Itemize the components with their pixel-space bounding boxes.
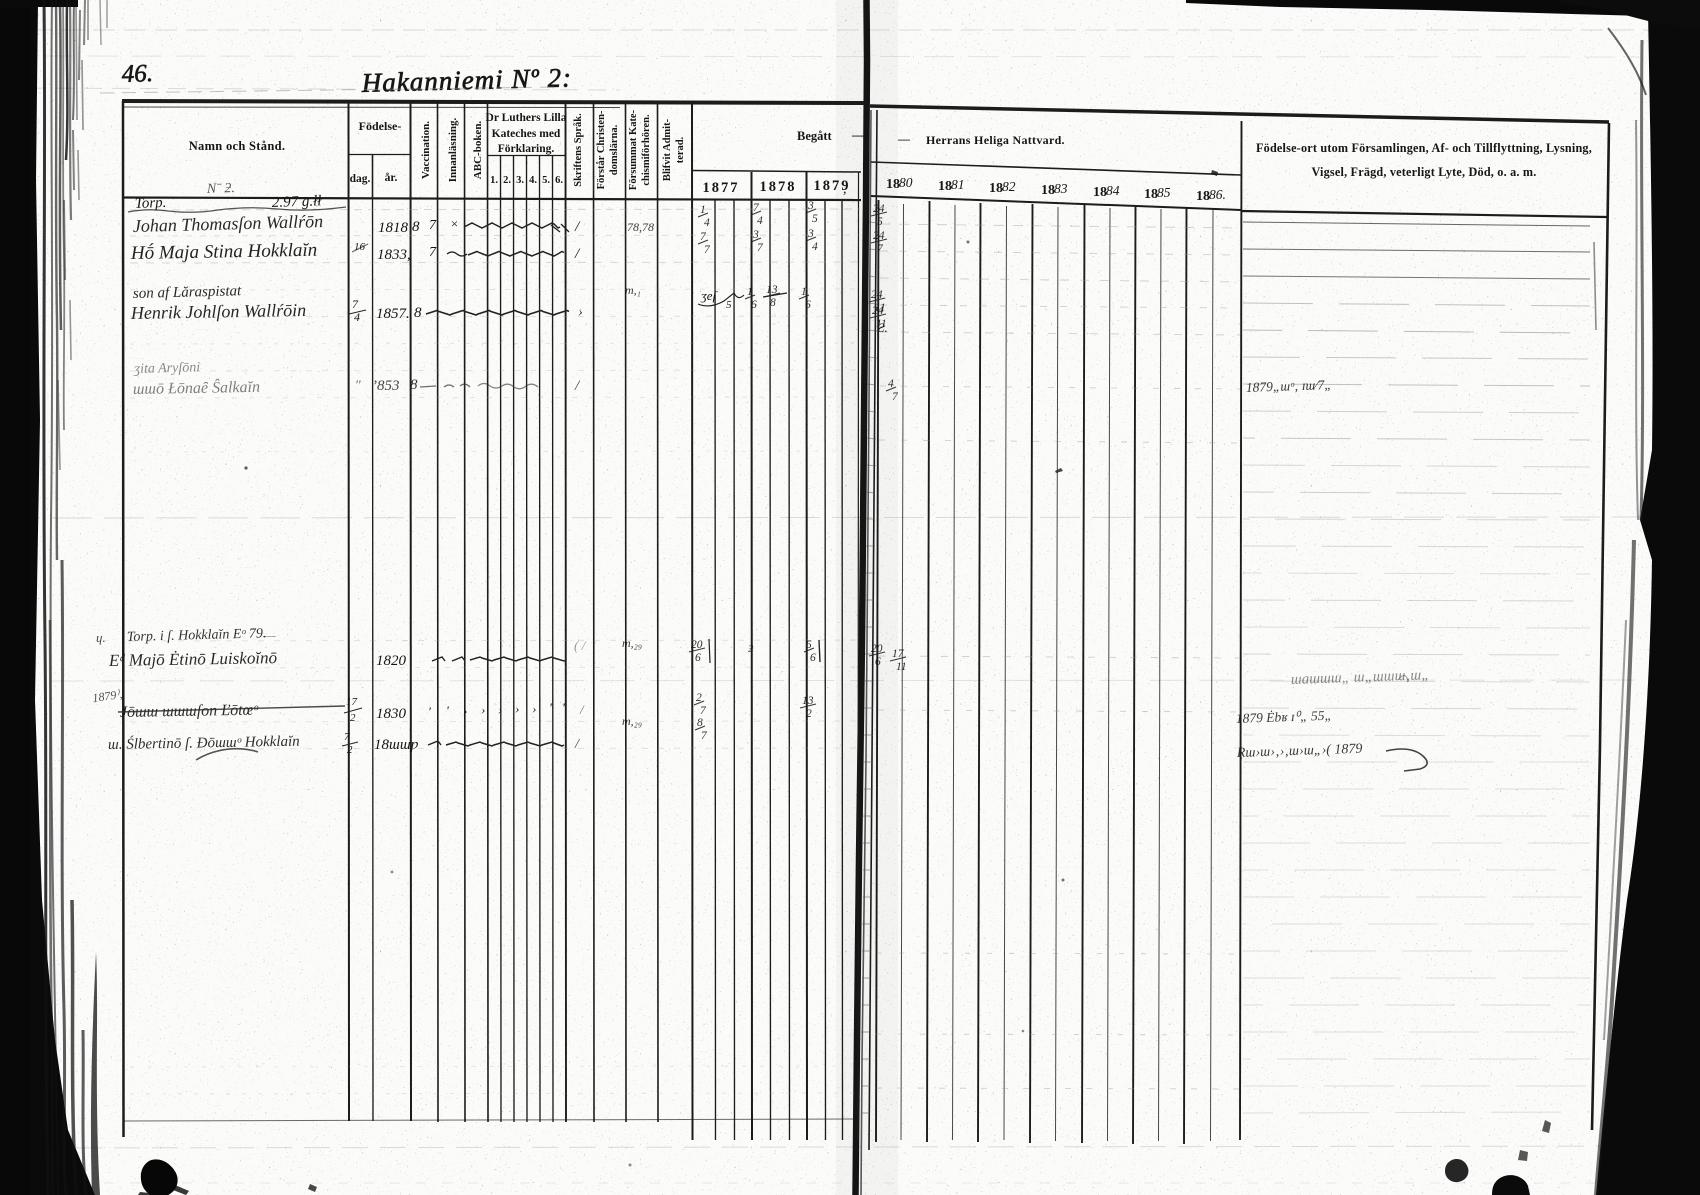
- svg-text:Herrans Heliga Nattvard.: Herrans Heliga Nattvard.: [926, 133, 1065, 147]
- svg-text:7: 7: [352, 297, 359, 311]
- svg-text:82: 82: [1002, 179, 1016, 194]
- svg-text:ʒeſ: ʒeſ: [700, 288, 719, 303]
- svg-text:›: ›: [481, 702, 485, 717]
- svg-text:ɥ.: ɥ.: [96, 630, 106, 645]
- svg-text:1.: 1.: [490, 175, 498, 186]
- svg-text:Eᵈ Majō Ėtinō Luiskoĭnō: Eᵈ Majō Ėtinō Luiskoĭnō: [108, 648, 278, 670]
- svg-text:Hakanniemi Nº 2:: Hakanniemi Nº 2:: [360, 62, 572, 98]
- svg-text:ʹ: ʹ: [428, 704, 431, 719]
- svg-text:m,₂₉: m,₂₉: [622, 714, 642, 728]
- svg-text:’853: ’853: [372, 378, 400, 394]
- svg-text:ˉˉˉ: ˉˉˉ: [262, 632, 277, 647]
- svg-text:46.: 46.: [121, 60, 153, 88]
- svg-text:år.: år.: [385, 172, 398, 184]
- svg-text:Födelse-ort utom Församlingen,: Födelse-ort utom Församlingen, Af- och T…: [1256, 141, 1592, 155]
- svg-text:1830: 1830: [376, 706, 407, 722]
- svg-text:8: 8: [412, 219, 420, 235]
- svg-text:Begått: Begått: [797, 129, 833, 143]
- svg-text:Vigsel, Frägd, veterligt Ly: Vigsel, Frägd, veterligt Lyte, Död, o. a…: [1312, 165, 1537, 179]
- svg-text:2: 2: [806, 708, 812, 720]
- svg-text:›: ›: [515, 701, 519, 716]
- svg-text:Försummat Kate-: Försummat Kate-: [628, 109, 639, 190]
- svg-text:ɯ. Ślbertinō ſ. Đōɯɯᵒ Hokklaĭn: ɯ. Ślbertinō ſ. Đōɯɯᵒ Hokklaĭn: [108, 733, 300, 753]
- svg-text:18ɯɯƿ: 18ɯɯƿ: [374, 737, 419, 753]
- svg-text:Skriftens Språk.: Skriftens Språk.: [573, 113, 584, 187]
- svg-text:1857.: 1857.: [376, 306, 410, 322]
- svg-text:85: 85: [1157, 185, 1171, 200]
- svg-text:8: 8: [770, 297, 776, 309]
- svg-text:Namn och Stånd.: Namn och Stånd.: [189, 139, 286, 153]
- svg-text:18: 18: [1093, 185, 1107, 200]
- svg-text:Ƨ.: Ƨ.: [878, 320, 888, 335]
- svg-text:8: 8: [414, 305, 422, 321]
- svg-text:Blifvit Admit-: Blifvit Admit-: [662, 118, 673, 181]
- svg-text:Kateches med: Kateches med: [492, 128, 561, 140]
- svg-text:6: 6: [695, 652, 701, 664]
- svg-text:18: 18: [886, 177, 900, 192]
- svg-text:›: ›: [463, 703, 467, 718]
- svg-text:84: 84: [1106, 183, 1120, 198]
- svg-text:2: 2: [347, 744, 353, 756]
- svg-text:1818: 1818: [378, 220, 409, 236]
- svg-text:3.: 3.: [516, 175, 524, 186]
- svg-text:17: 17: [346, 696, 358, 708]
- svg-text:ɯɯō Łōnaȇ Ŝalkaĭn: ɯɯō Łōnaȇ Ŝalkaĭn: [133, 377, 260, 398]
- svg-text:dag.: dag.: [350, 173, 371, 185]
- svg-text:7: 7: [429, 218, 437, 233]
- svg-text:Dr Luthers Lilla: Dr Luthers Lilla: [486, 112, 567, 124]
- svg-text:2.97 g.łł: 2.97 g.łł: [272, 193, 323, 211]
- svg-text:,: ,: [843, 182, 847, 197]
- svg-text:18: 18: [1144, 187, 1158, 202]
- svg-text:86.: 86.: [1209, 187, 1226, 202]
- svg-text:Förklaring.: Förklaring.: [498, 143, 555, 155]
- svg-text:ʹ: ʹ: [562, 700, 565, 715]
- svg-text:—: —: [897, 132, 911, 146]
- svg-text:Innanläsning.: Innanläsning.: [447, 117, 459, 182]
- svg-text:18: 18: [1196, 189, 1210, 204]
- svg-text:ʹ: ʹ: [549, 700, 552, 715]
- svg-text:16: 16: [354, 241, 366, 253]
- svg-text:6: 6: [810, 652, 816, 664]
- svg-text:Förstår Christen-: Förstår Christen-: [596, 110, 607, 189]
- svg-text:×: ×: [450, 216, 459, 231]
- svg-text:4.: 4.: [529, 175, 537, 186]
- svg-text:m,₂₉: m,₂₉: [622, 636, 642, 650]
- svg-text:terad.: terad.: [675, 136, 686, 163]
- svg-text:7: 7: [429, 245, 437, 260]
- svg-text:Födelse-: Födelse-: [359, 119, 402, 133]
- svg-text:1878: 1878: [760, 179, 797, 195]
- svg-text:18: 18: [1041, 183, 1055, 198]
- svg-text:4: 4: [757, 215, 763, 227]
- svg-text:domslärna.: domslärna.: [609, 124, 620, 175]
- svg-text:5: 5: [726, 299, 732, 311]
- svg-text:ƻ: ƻ: [748, 643, 754, 655]
- svg-text:Vaccination.: Vaccination.: [420, 121, 432, 179]
- svg-text:4: 4: [812, 241, 818, 253]
- svg-text:4: 4: [704, 217, 710, 229]
- svg-text:son af Lăraspistat: son af Lăraspistat: [133, 283, 243, 302]
- svg-text:11: 11: [896, 661, 907, 673]
- svg-text:6: 6: [805, 299, 811, 311]
- svg-text:18: 18: [989, 181, 1003, 196]
- svg-text:1877: 1877: [703, 180, 740, 196]
- svg-text:1820: 1820: [376, 653, 407, 669]
- svg-text:Hṓ Maja Stina Hokklaĭn: Hṓ Maja Stina Hokklaĭn: [130, 240, 318, 264]
- svg-text:78,78: 78,78: [627, 220, 654, 234]
- svg-text:81: 81: [951, 177, 965, 192]
- svg-text:6: 6: [751, 299, 757, 311]
- svg-text:83: 83: [1054, 181, 1068, 196]
- svg-text:5: 5: [812, 213, 818, 225]
- svg-text:›: ›: [498, 702, 502, 717]
- svg-text:1879„ɯᵒ‚ ɪɯ⁄7„: 1879„ɯᵒ‚ ɪɯ⁄7„: [1246, 377, 1332, 395]
- svg-text:—: —: [851, 128, 865, 142]
- svg-text:80: 80: [899, 175, 913, 190]
- svg-text:6: 6: [875, 656, 881, 668]
- svg-text:›: ›: [578, 305, 583, 320]
- svg-text:18: 18: [938, 179, 952, 194]
- svg-text:1833,: 1833,: [377, 247, 411, 263]
- svg-text:chismiförhören.: chismiförhören.: [641, 114, 652, 186]
- svg-text:8: 8: [410, 377, 418, 393]
- svg-text:2: 2: [350, 712, 356, 724]
- svg-text:7: 7: [344, 731, 350, 743]
- svg-text:( /: ( /: [574, 638, 587, 653]
- svg-text:ʹ: ʹ: [446, 703, 449, 718]
- svg-text:5.: 5.: [542, 175, 550, 186]
- svg-text:Henrik Johlſon Wallŕōin: Henrik Johlſon Wallŕōin: [130, 300, 307, 323]
- svg-text:ʹʹ: ʹʹ: [355, 377, 361, 392]
- svg-text:m,₁: m,₁: [625, 283, 641, 297]
- svg-text:›: ›: [532, 701, 536, 716]
- svg-text:5: 5: [877, 216, 883, 228]
- svg-text:6.: 6.: [555, 175, 563, 186]
- svg-text:Nˉ ƻ.: Nˉ ƻ.: [206, 181, 236, 197]
- svg-text:ABC-boken.: ABC-boken.: [472, 121, 484, 180]
- svg-text:ʒita Aryſōni: ʒita Aryſōni: [133, 360, 201, 377]
- svg-text:2.: 2.: [503, 175, 511, 186]
